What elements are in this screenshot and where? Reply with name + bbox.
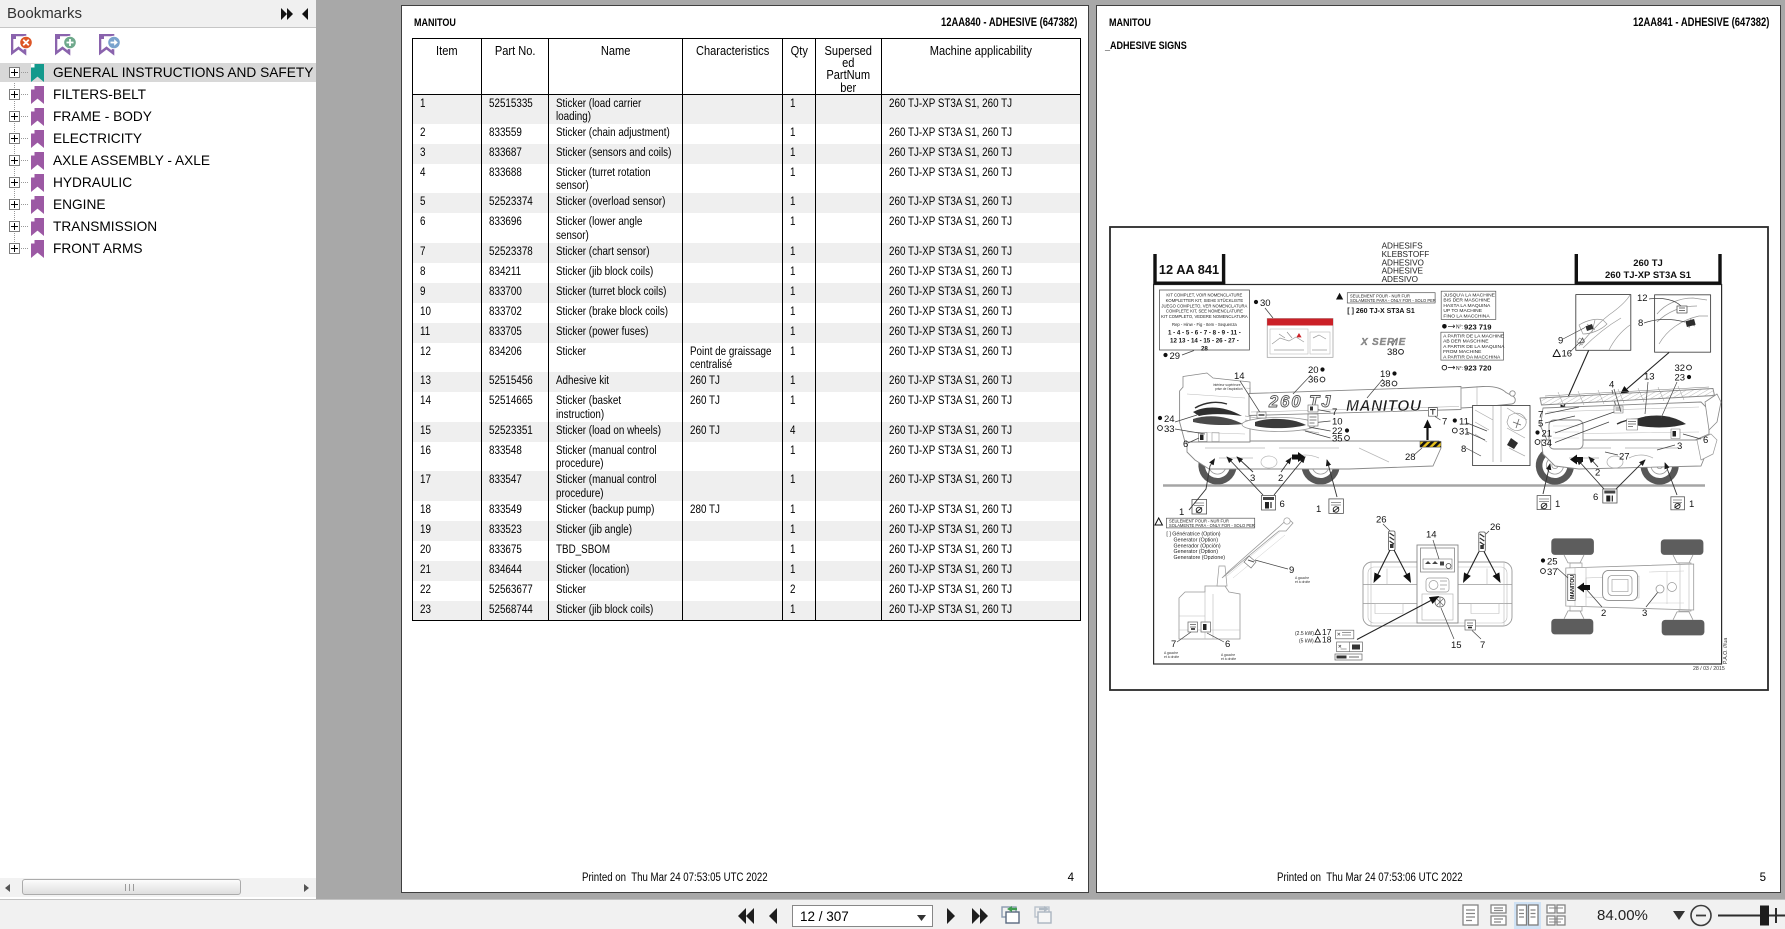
svg-text:14: 14 <box>1234 371 1245 382</box>
svg-text:26: 26 <box>1490 522 1501 533</box>
svg-text:X SERIE: X SERIE <box>1360 337 1406 348</box>
svg-text:14: 14 <box>1426 530 1437 541</box>
svg-text:SOLAMENTE PARA - ONLY FOR - SO: SOLAMENTE PARA - ONLY FOR - SOLO PER <box>1169 523 1255 528</box>
svg-text:ADESIVO: ADESIVO <box>1382 275 1418 284</box>
svg-text:A PARTIR DE LA MACHINE: A PARTIR DE LA MACHINE <box>1443 333 1505 339</box>
svg-text:23: 23 <box>1675 373 1686 384</box>
svg-text:et à droite: et à droite <box>1295 580 1310 584</box>
svg-text:25: 25 <box>1547 557 1558 568</box>
svg-text:BIS DER MASCHINE: BIS DER MASCHINE <box>1443 298 1490 304</box>
svg-text:8: 8 <box>1638 318 1643 329</box>
svg-text:JUEGO COMPLETO, VER NOMENCLATU: JUEGO COMPLETO, VER NOMENCLATURA <box>1161 303 1247 308</box>
svg-text:37: 37 <box>1547 567 1558 578</box>
svg-text:UP TO MACHINE: UP TO MACHINE <box>1443 308 1482 314</box>
svg-text:1: 1 <box>1555 499 1560 510</box>
svg-text:HASTA LA MAQUINA: HASTA LA MAQUINA <box>1443 303 1491 309</box>
svg-text:8: 8 <box>1461 444 1466 455</box>
svg-text:KIT COMPLET, VOIR NOMENCLATURE: KIT COMPLET, VOIR NOMENCLATURE <box>1166 293 1242 298</box>
svg-text:SOLAMENTE PARA - ONLY FOR - SO: SOLAMENTE PARA - ONLY FOR - SOLO PER <box>1350 298 1436 303</box>
svg-text:1: 1 <box>1689 499 1694 510</box>
svg-text:6: 6 <box>1703 435 1708 446</box>
svg-text:12 13 - 14 - 15 - 26 - 27 -: 12 13 - 14 - 15 - 26 - 27 - <box>1170 338 1239 345</box>
svg-text:7: 7 <box>1442 417 1447 428</box>
svg-text:FINO LA MACCHINA: FINO LA MACCHINA <box>1443 314 1490 320</box>
svg-text:A PARTIR DA MACCHINA: A PARTIR DA MACCHINA <box>1443 355 1501 361</box>
svg-text:16: 16 <box>1562 349 1573 360</box>
svg-text:15: 15 <box>1451 640 1462 651</box>
svg-text:(5 kW): (5 kW) <box>1299 639 1314 645</box>
svg-text:7: 7 <box>1480 640 1485 651</box>
svg-text:33: 33 <box>1164 424 1175 435</box>
svg-text:923 719: 923 719 <box>1464 322 1491 331</box>
svg-text:7: 7 <box>1171 639 1176 650</box>
svg-text:A PARTIR DE LA MAQUINA: A PARTIR DE LA MAQUINA <box>1443 344 1505 350</box>
svg-text:MANITOU: MANITOU <box>1570 575 1576 599</box>
svg-text:12 AA 841: 12 AA 841 <box>1159 262 1219 277</box>
svg-text:2: 2 <box>1278 473 1283 484</box>
svg-text:34: 34 <box>1542 438 1553 449</box>
svg-text:Generatore (Opzione): Generatore (Opzione) <box>1174 555 1226 561</box>
svg-text:1: 1 <box>1316 504 1321 515</box>
svg-text:6: 6 <box>1183 439 1188 450</box>
svg-text:13: 13 <box>1644 372 1655 383</box>
svg-text:260 TJ: 260 TJ <box>1633 258 1663 269</box>
svg-text:2: 2 <box>1595 468 1600 479</box>
svg-text:28: 28 <box>1201 346 1208 353</box>
svg-text:et à droite: et à droite <box>1221 657 1236 661</box>
svg-text:JUSQU'A LA MACHINE: JUSQU'A LA MACHINE <box>1443 292 1495 298</box>
svg-text:N°:: N°: <box>1456 366 1463 372</box>
svg-text:9: 9 <box>1558 336 1563 347</box>
svg-text:2: 2 <box>1601 608 1606 619</box>
svg-text:P.A.O. ///ua: P.A.O. ///ua <box>1723 638 1729 664</box>
svg-text:38: 38 <box>1387 347 1398 358</box>
svg-text:N°:: N°: <box>1456 325 1463 331</box>
svg-text:Rep - Hinw - Fig - Item - Sequ: Rep - Hinw - Fig - Item - Sequenza <box>1172 322 1237 327</box>
svg-text:9: 9 <box>1289 565 1294 576</box>
svg-text:1: 1 <box>1179 507 1184 518</box>
svg-text:923 720: 923 720 <box>1464 364 1491 373</box>
svg-text:(2.5 kW): (2.5 kW) <box>1295 631 1314 637</box>
svg-text:12: 12 <box>1637 293 1648 304</box>
svg-text:et à droite: et à droite <box>1164 655 1179 659</box>
svg-text:29: 29 <box>1170 351 1181 362</box>
svg-text:6: 6 <box>1280 499 1285 510</box>
svg-text:6: 6 <box>1225 639 1230 650</box>
svg-text:30: 30 <box>1260 298 1271 309</box>
svg-text:KOMPLETTER KIT, SIEHE STÜCKLIS: KOMPLETTER KIT, SIEHE STÜCKLISTE <box>1166 298 1244 303</box>
svg-text:MANITOU: MANITOU <box>1346 398 1422 415</box>
svg-text:260 TJ-XP ST3A S1: 260 TJ-XP ST3A S1 <box>1605 270 1692 281</box>
svg-text:28: 28 <box>1405 452 1416 463</box>
svg-text:260 TJ: 260 TJ <box>1268 393 1332 411</box>
svg-text:31: 31 <box>1459 427 1470 438</box>
svg-text:1 - 4 - 5 - 6 - 7 - 8 - 9 - 11: 1 - 4 - 5 - 6 - 7 - 8 - 9 - 11 - <box>1168 330 1241 337</box>
svg-text:3: 3 <box>1642 608 1647 619</box>
svg-text:prise de l’aspiration: prise de l’aspiration <box>1215 387 1243 391</box>
svg-text:27: 27 <box>1619 452 1630 463</box>
svg-text:6: 6 <box>1593 492 1598 503</box>
svg-text:28 / 03 / 2015: 28 / 03 / 2015 <box>1693 666 1725 672</box>
svg-text:AB DER MASCHINE: AB DER MASCHINE <box>1443 339 1489 345</box>
svg-text:4: 4 <box>1609 380 1614 391</box>
svg-text:KIT COMPLETO, VEDERE NOMENCLAT: KIT COMPLETO, VEDERE NOMENCLATURA <box>1161 314 1248 319</box>
svg-text:35: 35 <box>1332 434 1343 445</box>
svg-text:FROM MACHINE: FROM MACHINE <box>1443 349 1482 355</box>
svg-text:18: 18 <box>1322 635 1332 645</box>
svg-text:[ ] 260 TJ-X ST3A S1: [ ] 260 TJ-X ST3A S1 <box>1347 308 1415 315</box>
svg-text:3: 3 <box>1677 441 1682 452</box>
svg-text:26: 26 <box>1376 515 1387 526</box>
svg-text:COMPLETE KIT, SEE NOMENCLATURE: COMPLETE KIT, SEE NOMENCLATURE <box>1166 309 1243 314</box>
